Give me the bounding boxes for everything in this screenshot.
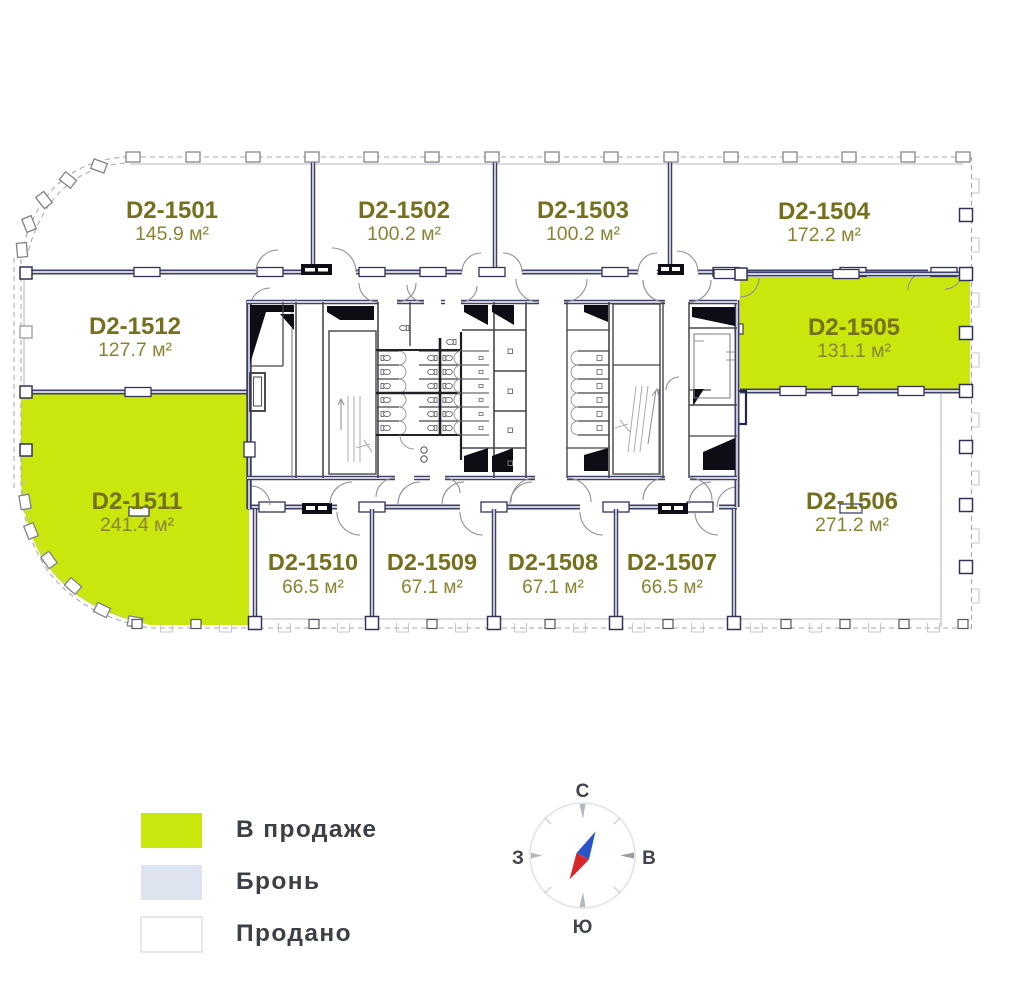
svg-text:67.1 м²: 67.1 м² (522, 577, 584, 598)
svg-text:D2-1508: D2-1508 (508, 549, 598, 575)
svg-text:67.1 м²: 67.1 м² (401, 577, 463, 598)
svg-text:Ю: Ю (573, 917, 593, 938)
svg-text:З: З (512, 848, 524, 869)
svg-text:D2-1504: D2-1504 (778, 198, 871, 225)
svg-text:D2-1501: D2-1501 (126, 197, 218, 224)
svg-text:D2-1509: D2-1509 (387, 549, 477, 575)
svg-text:D2-1506: D2-1506 (806, 488, 898, 515)
svg-text:D2-1507: D2-1507 (627, 549, 717, 575)
svg-text:D2-1502: D2-1502 (358, 197, 450, 224)
svg-text:D2-1503: D2-1503 (537, 197, 629, 224)
svg-text:241.4 м²: 241.4 м² (100, 514, 175, 536)
svg-text:66.5 м²: 66.5 м² (641, 577, 703, 598)
svg-text:В: В (642, 848, 656, 869)
svg-text:172.2 м²: 172.2 м² (787, 224, 862, 246)
svg-text:D2-1512: D2-1512 (89, 313, 181, 340)
svg-text:В продаже: В продаже (236, 816, 377, 843)
svg-text:66.5 м²: 66.5 м² (282, 577, 344, 598)
svg-text:145.9 м²: 145.9 м² (135, 223, 210, 245)
svg-text:127.7 м²: 127.7 м² (98, 339, 173, 361)
svg-text:D2-1505: D2-1505 (808, 314, 900, 341)
svg-text:100.2 м²: 100.2 м² (546, 223, 621, 245)
svg-text:131.1 м²: 131.1 м² (817, 340, 892, 362)
svg-text:D2-1511: D2-1511 (92, 488, 183, 515)
svg-text:Бронь: Бронь (236, 868, 320, 895)
svg-text:D2-1510: D2-1510 (268, 549, 358, 575)
svg-text:Продано: Продано (236, 920, 352, 947)
svg-text:С: С (576, 781, 590, 802)
svg-text:271.2 м²: 271.2 м² (815, 514, 890, 536)
svg-text:100.2 м²: 100.2 м² (367, 223, 442, 245)
